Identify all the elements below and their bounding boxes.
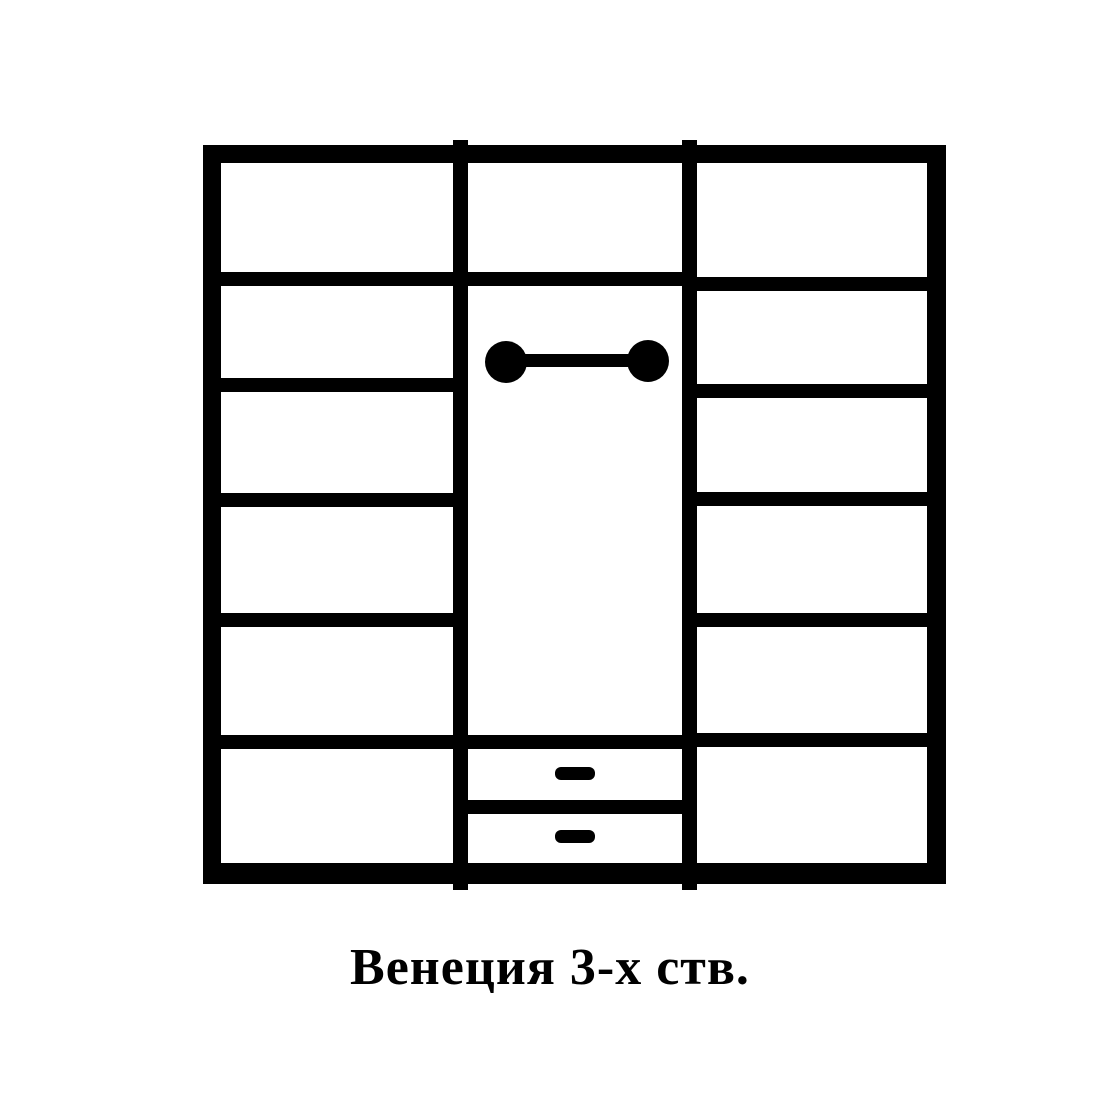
- product-schematic-page: Венеция 3-х ств.: [0, 0, 1100, 1100]
- drawer-divider-line: [468, 800, 682, 814]
- drawer-top-line: [468, 735, 682, 749]
- shelf-line: [697, 492, 927, 506]
- drawer-handle-icon: [555, 767, 595, 780]
- shelf-line: [221, 378, 453, 392]
- shelf-line: [697, 277, 927, 291]
- section-divider-left: [453, 140, 468, 890]
- hanger-rod-end-left: [485, 341, 527, 383]
- shelf-line: [697, 384, 927, 398]
- hanger-rod-end-right: [627, 340, 669, 382]
- section-divider-right: [682, 140, 697, 890]
- shelf-line: [221, 613, 453, 627]
- shelf-line: [221, 493, 453, 507]
- shelf-line: [221, 272, 453, 286]
- product-title: Венеция 3-х ств.: [0, 936, 1100, 1000]
- shelf-line: [697, 733, 927, 747]
- shelf-line: [221, 735, 453, 749]
- drawer-handle-icon: [555, 830, 595, 843]
- shelf-line: [697, 613, 927, 627]
- top-shelf-line: [468, 272, 682, 286]
